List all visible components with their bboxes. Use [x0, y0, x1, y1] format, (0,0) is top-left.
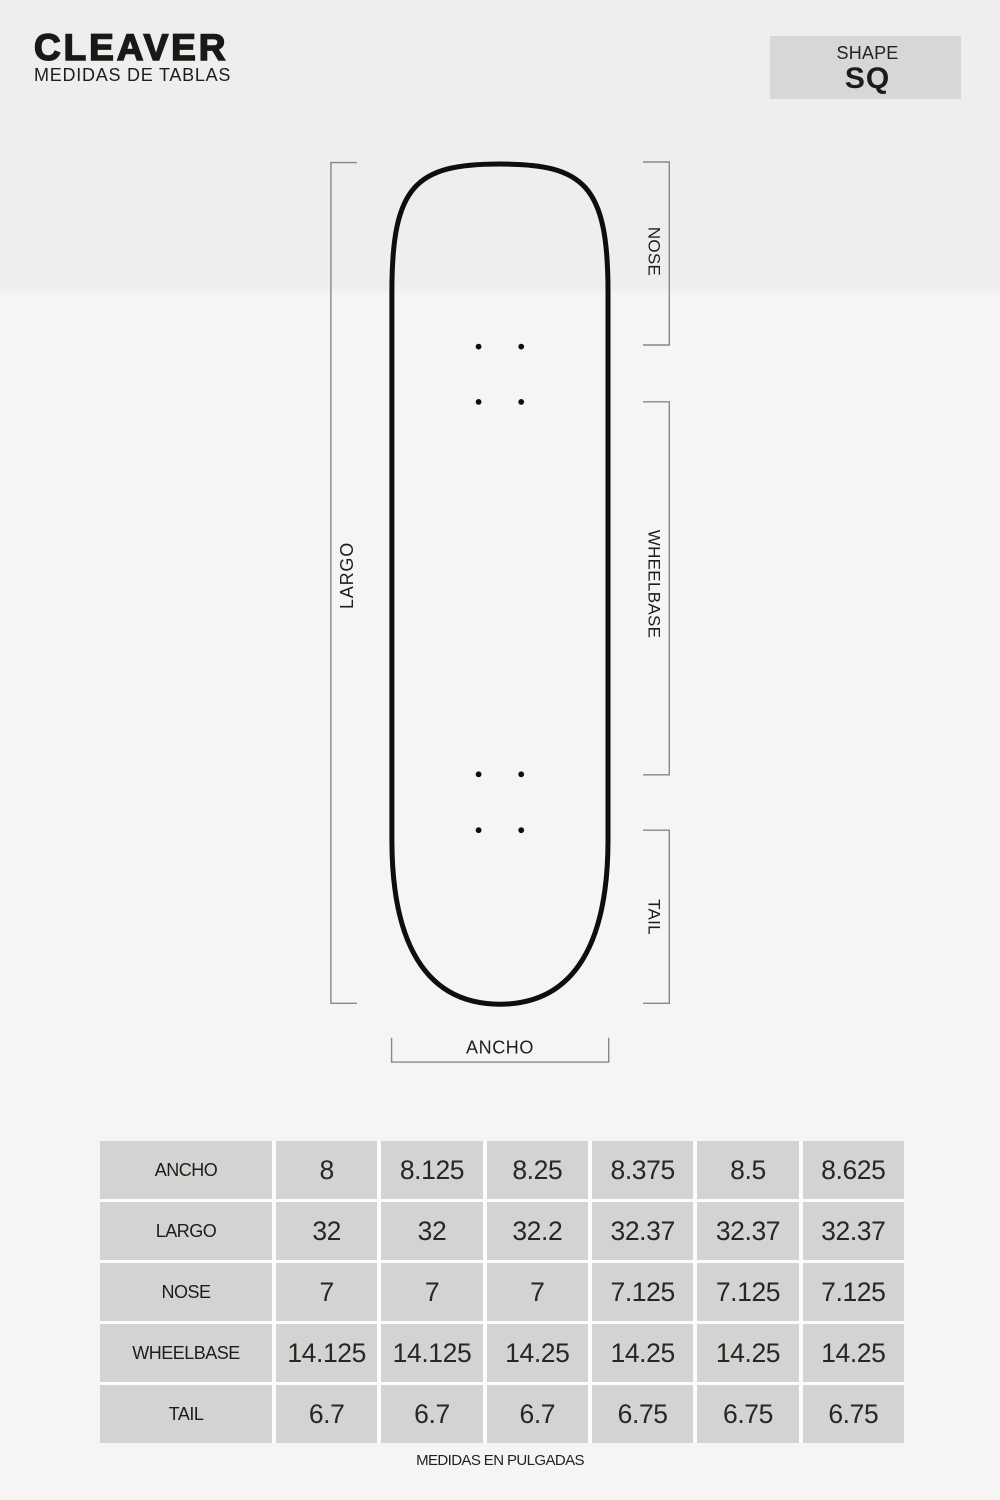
svg-text:LARGO: LARGO	[337, 542, 357, 609]
svg-text:NOSE: NOSE	[645, 227, 664, 276]
svg-text:WHEELBASE: WHEELBASE	[645, 530, 664, 639]
svg-text:ANCHO: ANCHO	[466, 1038, 534, 1058]
svg-text:TAIL: TAIL	[645, 899, 664, 935]
